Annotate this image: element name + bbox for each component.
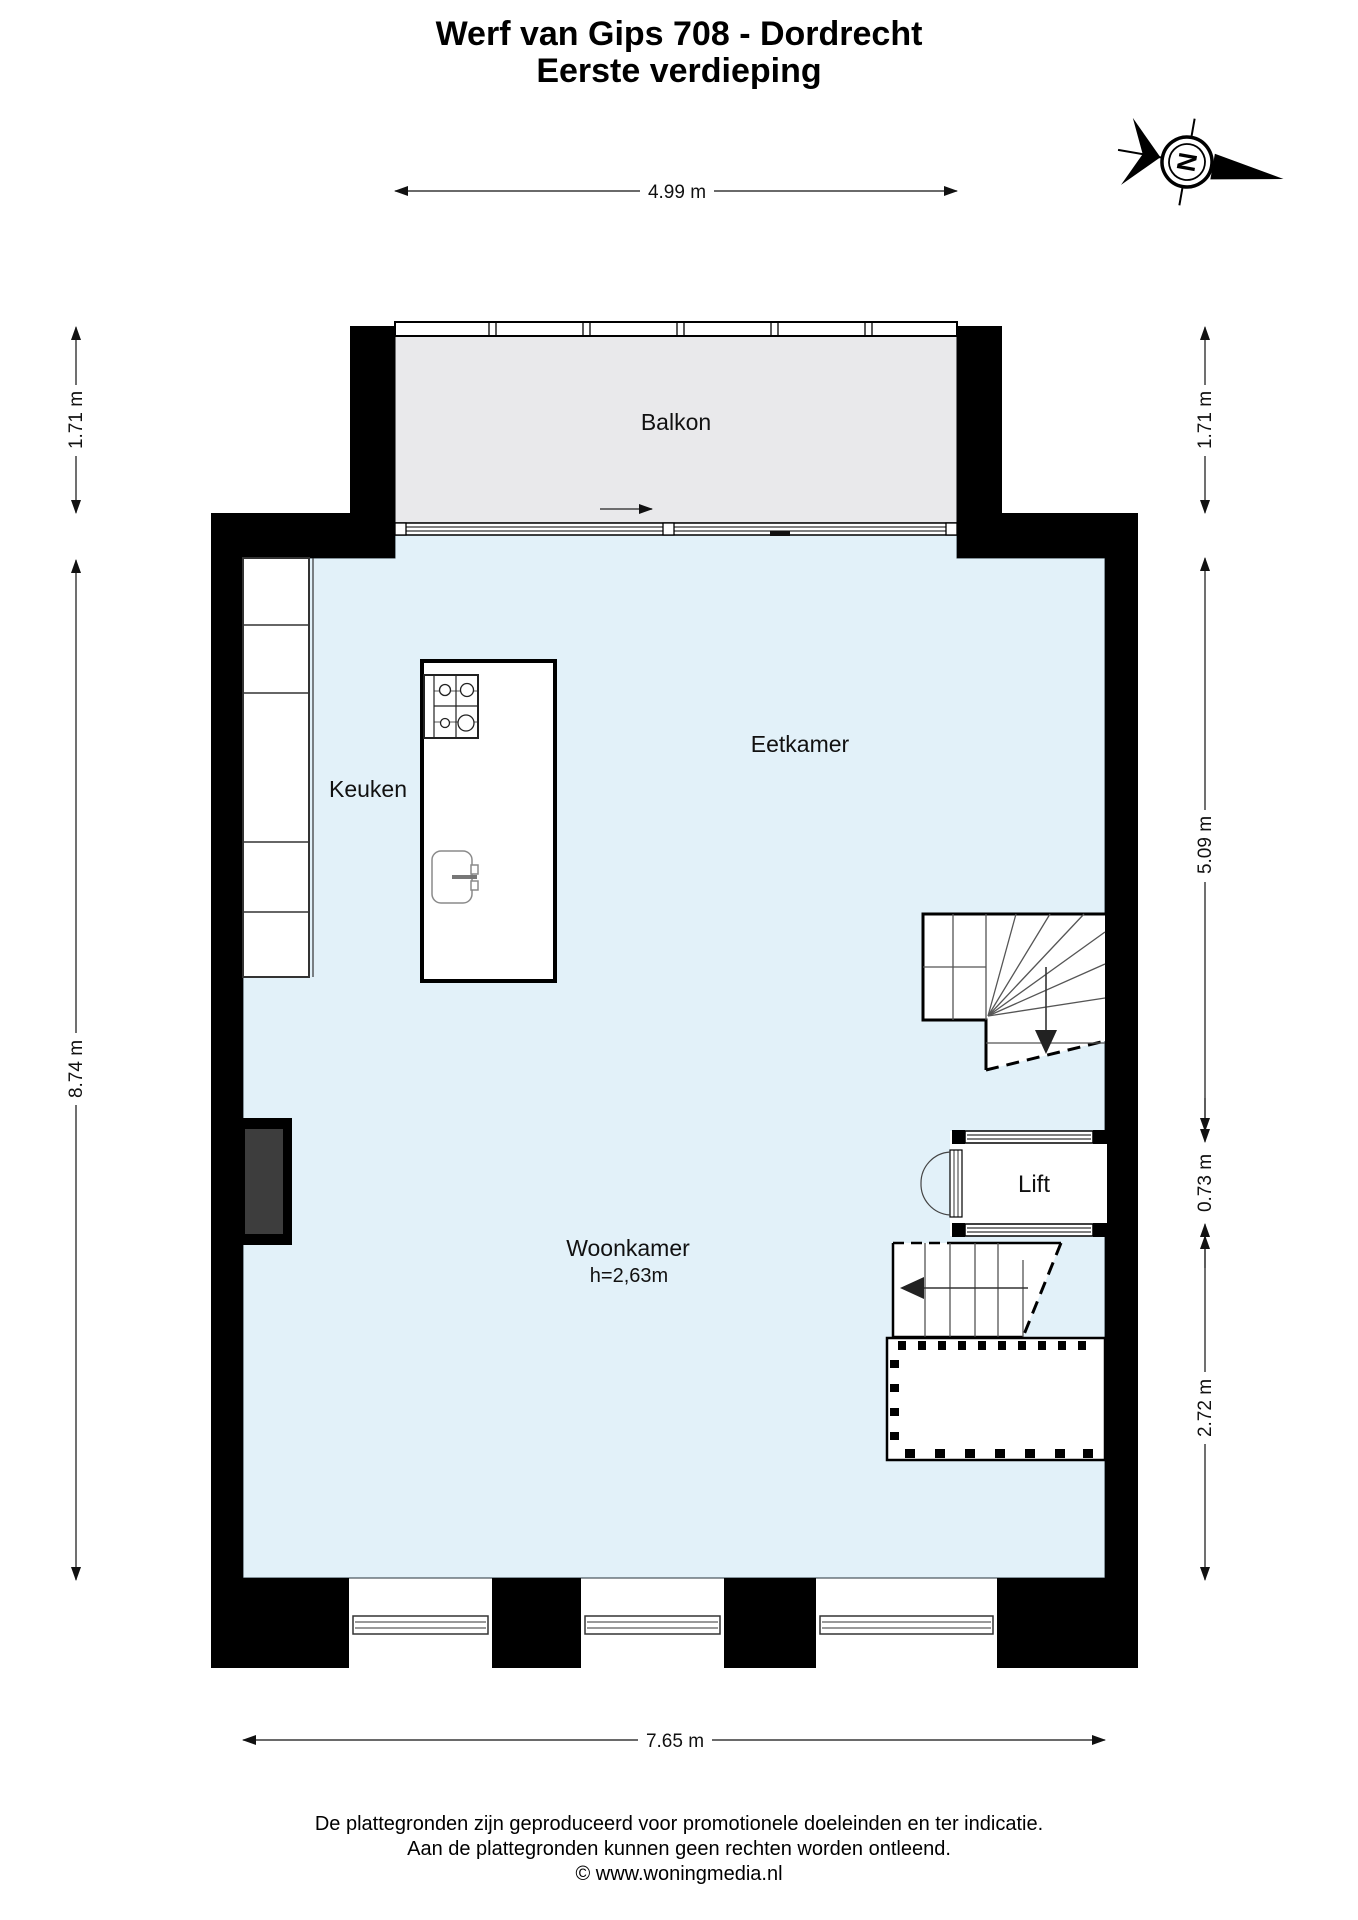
window: [820, 1616, 993, 1634]
stove: [424, 675, 478, 738]
dim-right-lower-label: 2.72 m: [1195, 1379, 1216, 1437]
kitchen-island: [422, 661, 555, 981]
lift-wall-bottom: [952, 1223, 1107, 1237]
dim-left-balcony-label: 1.71 m: [66, 391, 87, 449]
dim-right-upper-label: 5.09 m: [1195, 816, 1216, 874]
dimension-bottom: 7.65 m: [243, 1731, 1105, 1752]
bottom-windows: [353, 1616, 993, 1634]
footer-line2: Aan de plattegronden kunnen geen rechten…: [0, 1837, 1358, 1862]
room-label-woonkamer: Woonkamer: [566, 1235, 690, 1261]
dimension-top: 4.99 m: [395, 182, 957, 203]
dimension-right-lower: 2.72 m: [1195, 1236, 1216, 1580]
floorplan-drawing: Lift: [0, 0, 1358, 1920]
footer-line3: © www.woningmedia.nl: [0, 1862, 1358, 1887]
room-label-eetkamer: Eetkamer: [751, 731, 850, 757]
lift-wall-top: [952, 1130, 1107, 1144]
balcony-railing: [395, 322, 957, 336]
dim-bottom-label: 7.65 m: [646, 1731, 704, 1752]
dimension-right-balcony: 1.71 m: [1195, 327, 1216, 513]
stairwell-void: [887, 1338, 1105, 1460]
kitchen-cabinets: [243, 558, 313, 977]
compass-north-icon: N: [1110, 107, 1291, 223]
room-height-label: h=2,63m: [590, 1265, 668, 1287]
dimension-left-balcony: 1.71 m: [66, 327, 87, 513]
room-label-balkon: Balkon: [641, 409, 711, 435]
dim-left-main-label: 8.74 m: [66, 1040, 87, 1098]
sink: [432, 851, 478, 903]
dim-right-lift-label: 0.73 m: [1195, 1154, 1216, 1212]
window: [353, 1616, 488, 1634]
dimension-left-main: 8.74 m: [66, 560, 87, 1580]
room-label-lift: Lift: [1018, 1171, 1050, 1198]
wall-shaft: [243, 1118, 292, 1245]
footer-disclaimer: De plattegronden zijn geproduceerd voor …: [0, 1812, 1358, 1887]
dimension-right-upper: 5.09 m: [1195, 558, 1216, 1131]
floorplan-page: Werf van Gips 708 - Dordrecht Eerste ver…: [0, 0, 1358, 1920]
footer-line1: De plattegronden zijn geproduceerd voor …: [0, 1812, 1358, 1837]
dim-top-label: 4.99 m: [648, 182, 706, 203]
door-handle: [770, 531, 790, 536]
room-label-keuken: Keuken: [329, 776, 407, 802]
window: [585, 1616, 720, 1634]
dim-right-balcony-label: 1.71 m: [1195, 391, 1216, 449]
